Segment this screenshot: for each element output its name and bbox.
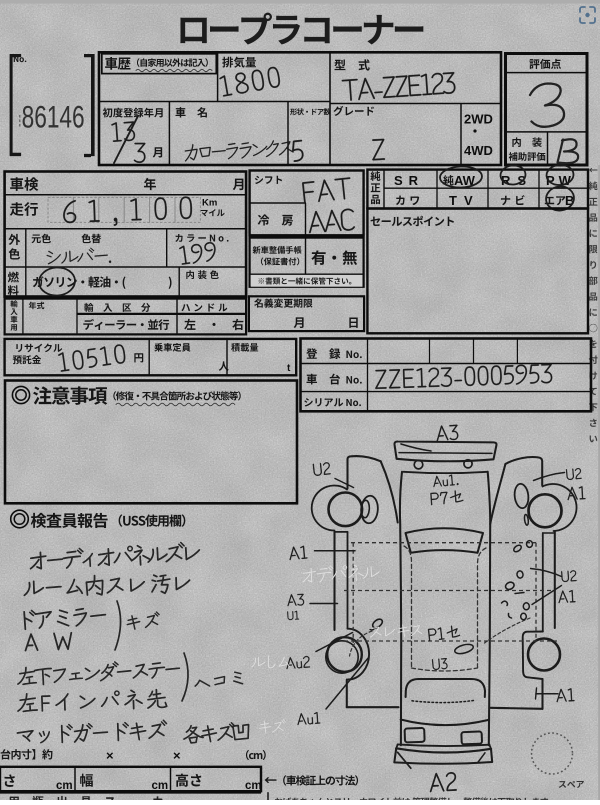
svg-text:cm: cm [56, 780, 73, 792]
svg-text:TV: TV [449, 193, 480, 208]
svg-text:×: × [173, 748, 181, 763]
svg-text:cm: cm [245, 780, 262, 792]
svg-text:×: × [106, 748, 114, 763]
svg-text:SR: SR [394, 173, 424, 188]
svg-text:2WD: 2WD [464, 112, 493, 127]
svg-text:cm: cm [152, 780, 169, 792]
svg-text:RS: RS [501, 173, 533, 188]
svg-text:Km: Km [202, 198, 217, 209]
svg-text:4WD: 4WD [464, 143, 493, 158]
svg-text:86146: 86146 [22, 99, 85, 135]
